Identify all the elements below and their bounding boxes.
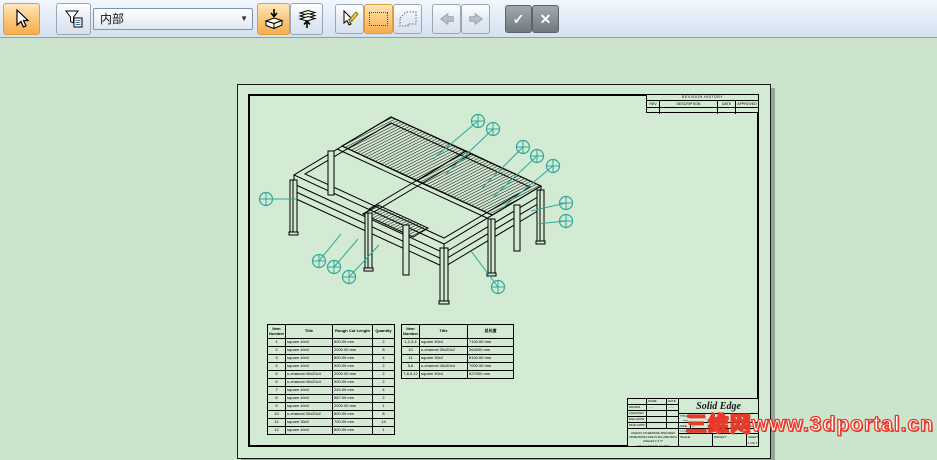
site-watermark: 三维网www.3dportal.cn <box>686 408 934 438</box>
bom-cell: u-channel 30x20x2 <box>286 411 333 419</box>
bom-cell: square 40x4 <box>420 371 468 379</box>
table-row: 7,8,9,12square 40x4627000 mm <box>402 371 514 379</box>
drawn-date: —— <box>667 405 678 410</box>
bom-cell: 2000.00 mm <box>333 403 373 411</box>
cursor-arrow-icon <box>13 9 31 29</box>
name-col-label: NAME <box>647 399 667 404</box>
bom-cell: 627000 mm <box>468 371 514 379</box>
bom-cell: 567.00 mm <box>333 395 373 403</box>
bom-cell: 1 <box>373 427 395 435</box>
bom-cell: 2 <box>373 363 395 371</box>
bom-cell: 600.00 mm <box>333 339 373 347</box>
funnel-list-icon <box>64 9 84 29</box>
mgr-appr-label: MGR APPR <box>628 423 647 428</box>
date-col-header: DATE <box>718 101 736 107</box>
bom-cell: square 40x4 <box>286 363 333 371</box>
cursor-pencil-icon <box>340 9 360 29</box>
table-row: 8square 40x4567.00 mm2 <box>268 395 395 403</box>
select-tool-button[interactable] <box>3 3 40 35</box>
table-row: 12square 40x4800.00 mm1 <box>268 427 395 435</box>
bom-cell: 800.00 mm <box>333 355 373 363</box>
approved-col-header: APPROVED <box>736 101 758 107</box>
eng-appr-label: ENG APPR <box>628 417 647 422</box>
bom-cell: 2000.00 mm <box>333 347 373 355</box>
bom-cell: 2 <box>373 371 395 379</box>
balloon-callout[interactable] <box>313 234 342 268</box>
bom-cell: 700.00 mm <box>333 419 373 427</box>
bom-cell: 7 <box>268 387 286 395</box>
bom-cell: 800.00 mm <box>333 411 373 419</box>
table-row: 7square 40x4240.00 mm4 <box>268 387 395 395</box>
bom-cell: 900.00 mm <box>333 379 373 387</box>
back-arrow-icon <box>438 10 456 28</box>
bom-cell: 9 <box>268 403 286 411</box>
drawing-canvas[interactable]: REVISION HISTORY REV DESCRIPTION DATE AP… <box>0 38 937 439</box>
bom-cell: 14 <box>373 419 395 427</box>
back-button[interactable] <box>432 4 461 34</box>
bom-cell: square 30x2 <box>420 355 468 363</box>
bom-cell: 4 <box>268 363 286 371</box>
bom-cell: square 40x4 <box>286 403 333 411</box>
bom-cell: 8 <box>373 347 395 355</box>
bom-cell: 8100.00 mm <box>468 355 514 363</box>
toolbar: 内部 ▼ <box>0 0 937 38</box>
table-row: 10u-channel 30x20x2800.00 mm8 <box>268 411 395 419</box>
bom-col-header: Item Number <box>268 325 286 339</box>
table-row: 4square 40x4900.00 mm2 <box>268 363 395 371</box>
bom-cell: 240.00 mm <box>333 387 373 395</box>
bom-cell: u-channel 40x20x4 <box>286 371 333 379</box>
tolerance-note: UNLESS OTHERWISE SPECIFIED DIMENSIONS AR… <box>628 429 678 448</box>
bom-cell: 11 <box>268 419 286 427</box>
bom-cell: u-channel 40x20x4 <box>286 379 333 387</box>
bom-cell: 8 <box>268 395 286 403</box>
bom-cell: square 30x2 <box>286 419 333 427</box>
scope-dropdown-value: 内部 <box>100 10 124 27</box>
bom-cell: 12 <box>268 427 286 435</box>
drawing-sheet[interactable]: REVISION HISTORY REV DESCRIPTION DATE AP… <box>237 84 771 459</box>
table-row: 5u-channel 40x20x42000.00 mm2 <box>268 371 395 379</box>
table-row: 2square 40x42000.00 mm8 <box>268 347 395 355</box>
dotted-rectangle-icon <box>369 12 388 26</box>
bom-cell: 10 <box>402 347 420 355</box>
bom-cell: 2 <box>373 339 395 347</box>
bom-cell: square 40x4 <box>286 427 333 435</box>
bom-cell: u-channel 40x20x4 <box>420 363 468 371</box>
bom-col-header: Title <box>286 325 333 339</box>
validate-selection-button[interactable] <box>335 4 364 34</box>
activate-part-button[interactable] <box>257 3 290 35</box>
accept-button[interactable]: ✓ <box>505 5 532 33</box>
table-row: 10u-channel 30x20x2264000 mm <box>402 347 514 355</box>
bom-cell: 2000.00 mm <box>333 371 373 379</box>
bom-cell: 6 <box>268 379 286 387</box>
bom-cell: 1,2,3,4 <box>402 339 420 347</box>
deactivate-part-button[interactable] <box>290 3 323 35</box>
table-row: 6u-channel 40x20x4900.00 mm2 <box>268 379 395 387</box>
table-row: 11square 30x2700.00 mm14 <box>268 419 395 427</box>
bom-cell: 4 <box>373 387 395 395</box>
cancel-button[interactable]: ✕ <box>532 5 559 33</box>
date-col-label: DATE <box>667 399 678 404</box>
bom-cell: 3 <box>268 355 286 363</box>
bom-col-header: 总长度 <box>468 325 514 339</box>
bom-cell: 900.00 mm <box>333 363 373 371</box>
layers-up-arrow-icon <box>296 8 318 30</box>
table-row: 5,6u-channel 40x20x47000.00 mm <box>402 363 514 371</box>
bom-col-header: Title <box>420 325 468 339</box>
bom-cell: 7,8,9,12 <box>402 371 420 379</box>
bom-cell: 2 <box>373 379 395 387</box>
bom-cell: square 40x4 <box>286 395 333 403</box>
chevron-down-icon: ▼ <box>240 14 248 23</box>
table-row: 3square 40x4800.00 mm4 <box>268 355 395 363</box>
box-down-arrow-icon <box>263 8 285 30</box>
bom-cell: 5,6 <box>402 363 420 371</box>
bom-cell: 2 <box>268 347 286 355</box>
selection-filter-button[interactable] <box>56 3 91 35</box>
drawn-label: DRAWN <box>628 405 647 410</box>
table-row: 1,2,3,4square 40x47100.00 mm <box>402 339 514 347</box>
forward-button[interactable] <box>461 4 490 34</box>
check-icon: ✓ <box>513 12 525 26</box>
drawn-name: —— <box>647 405 667 410</box>
bom-cell: 1 <box>373 403 395 411</box>
bom-cell: 11 <box>402 355 420 363</box>
bom-cell: 7000.00 mm <box>468 363 514 371</box>
close-icon: ✕ <box>540 12 552 26</box>
bom-cell: 8 <box>373 411 395 419</box>
table-row: 11square 30x28100.00 mm <box>402 355 514 363</box>
description-col-header: DESCRIPTION <box>660 101 718 107</box>
bom-cell: u-channel 30x20x2 <box>420 347 468 355</box>
bom-cell: 2 <box>373 395 395 403</box>
table-row: 1square 40x4600.00 mm2 <box>268 339 395 347</box>
rev-col-header: REV <box>647 101 660 107</box>
table-row: 9square 40x42000.00 mm1 <box>268 403 395 411</box>
dotted-polygon-icon <box>398 10 418 28</box>
scope-dropdown[interactable]: 内部 ▼ <box>93 8 253 30</box>
bom-cell: square 40x4 <box>286 387 333 395</box>
bom-col-header: Rough Cut Length <box>333 325 373 339</box>
revision-history-table: REVISION HISTORY REV DESCRIPTION DATE AP… <box>646 94 759 113</box>
bom-cell: 800.00 mm <box>333 427 373 435</box>
bom-cut-length-table: Item NumberTitleRough Cut LengthQuantity… <box>267 324 395 435</box>
bom-cell: 1 <box>268 339 286 347</box>
forward-arrow-icon <box>467 10 485 28</box>
bom-cell: 5 <box>268 371 286 379</box>
checked-label: CHECKED <box>628 411 647 416</box>
bom-cell: square 40x4 <box>286 355 333 363</box>
bom-cell: 264000 mm <box>468 347 514 355</box>
bom-cell: square 40x4 <box>420 339 468 347</box>
bom-cell: square 40x4 <box>286 347 333 355</box>
box-select-button[interactable] <box>364 4 393 34</box>
bom-cell: 7100.00 mm <box>468 339 514 347</box>
bom-col-header: Quantity <box>373 325 395 339</box>
bom-cell: square 40x4 <box>286 339 333 347</box>
bom-total-length-table: Item NumberTitle总长度1,2,3,4square 40x4710… <box>401 324 514 379</box>
bom-cell: 10 <box>268 411 286 419</box>
frame-structure <box>289 117 545 304</box>
bom-col-header: Item Number <box>402 325 420 339</box>
bom-cell: 4 <box>373 355 395 363</box>
fence-select-button[interactable] <box>393 4 422 34</box>
